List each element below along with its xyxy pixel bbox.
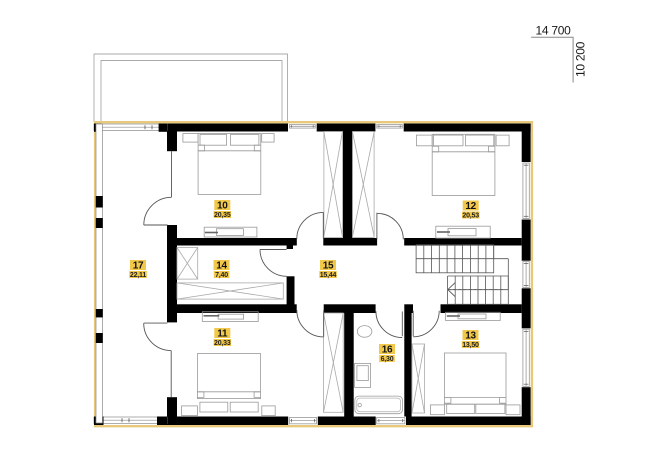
svg-text:7,40: 7,40	[215, 272, 228, 279]
svg-text:10 200: 10 200	[574, 41, 588, 77]
svg-text:13: 13	[465, 330, 476, 341]
svg-text:14 700: 14 700	[536, 24, 572, 38]
svg-text:22,11: 22,11	[130, 272, 146, 279]
svg-text:12: 12	[465, 201, 476, 212]
svg-text:6,30: 6,30	[381, 356, 394, 363]
svg-text:14: 14	[216, 260, 227, 271]
svg-text:15,44: 15,44	[320, 272, 337, 279]
svg-text:20,33: 20,33	[214, 340, 231, 347]
svg-text:20,53: 20,53	[462, 212, 479, 219]
svg-text:10: 10	[217, 200, 228, 211]
svg-text:13,50: 13,50	[462, 342, 479, 349]
svg-text:16: 16	[382, 344, 393, 355]
svg-text:17: 17	[133, 260, 144, 271]
svg-text:15: 15	[323, 260, 334, 271]
svg-text:11: 11	[217, 328, 228, 339]
svg-text:20,35: 20,35	[214, 212, 231, 219]
